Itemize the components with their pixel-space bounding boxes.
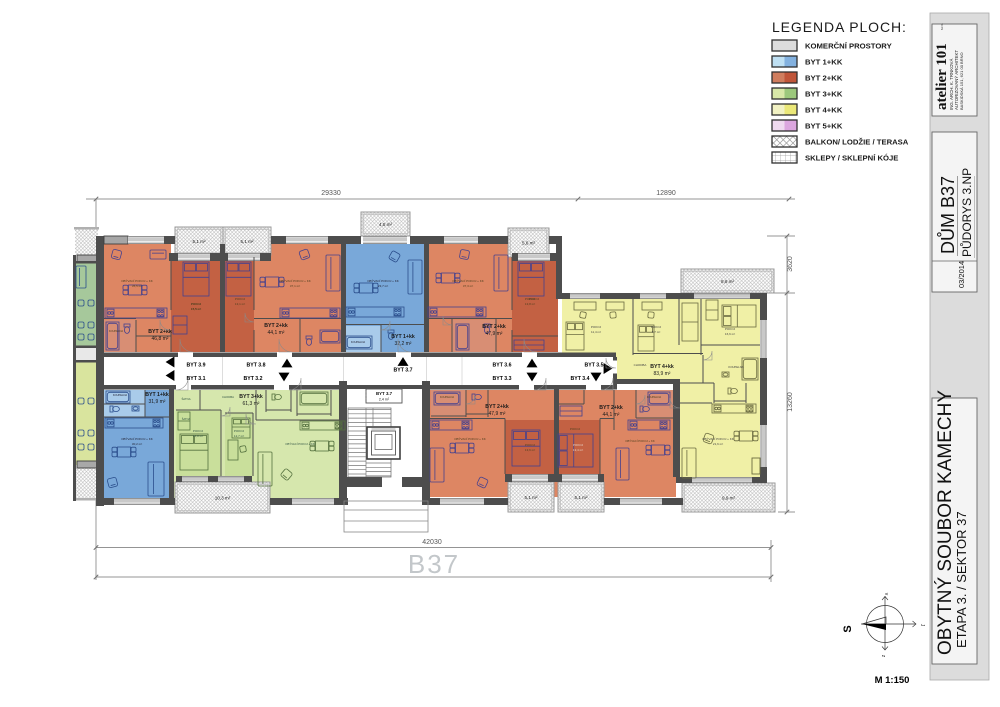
svg-text:POKOJ: POKOJ — [651, 325, 662, 329]
svg-text:16,6 m²: 16,6 m² — [725, 332, 735, 336]
svg-text:BYT 4+KK: BYT 4+KK — [805, 106, 843, 115]
svg-text:BYT 2+kk: BYT 2+kk — [599, 405, 623, 411]
svg-text:37,3 m²: 37,3 m² — [463, 284, 473, 288]
svg-text:POKOJ: POKOJ — [525, 443, 536, 447]
svg-text:13260: 13260 — [787, 392, 794, 412]
svg-text:5,1 m²: 5,1 m² — [192, 239, 205, 244]
svg-text:BYT 4+kk: BYT 4+kk — [650, 364, 674, 370]
svg-text:13,8 m²: 13,8 m² — [525, 302, 535, 306]
svg-text:KOMERČNÍ PROSTORY: KOMERČNÍ PROSTORY — [805, 42, 892, 51]
svg-text:OBÝVACÍ POKOJ + KK: OBÝVACÍ POKOJ + KK — [121, 437, 153, 441]
svg-text:BYT 1+KK: BYT 1+KK — [805, 58, 843, 67]
svg-text:OBÝVACÍ POKOJ + KK: OBÝVACÍ POKOJ + KK — [452, 279, 484, 283]
svg-text:BYT 1+kk: BYT 1+kk — [145, 392, 169, 398]
svg-text:BYT 2+kk: BYT 2+kk — [482, 324, 506, 330]
svg-text:BYT 3.2: BYT 3.2 — [243, 376, 262, 382]
svg-text:BYT 5+KK: BYT 5+KK — [805, 122, 843, 131]
svg-text:10,3 m²: 10,3 m² — [215, 496, 231, 501]
svg-text:PŮDORYS 3.NP: PŮDORYS 3.NP — [959, 168, 974, 257]
svg-text:29330: 29330 — [321, 190, 341, 197]
svg-text:46,8 m²: 46,8 m² — [152, 336, 169, 342]
svg-text:5,1 m²: 5,1 m² — [574, 495, 587, 500]
svg-text:POKOJ: POKOJ — [191, 302, 202, 306]
svg-text:s.r.o.: s.r.o. — [940, 23, 944, 30]
svg-text:KOUPELNA: KOUPELNA — [113, 393, 127, 397]
svg-text:KOUPELNA: KOUPELNA — [647, 395, 661, 399]
svg-text:BYT 1+kk: BYT 1+kk — [391, 334, 415, 340]
svg-text:8,6 m²: 8,6 m² — [721, 279, 734, 284]
svg-text:44,1 m²: 44,1 m² — [603, 412, 620, 418]
svg-text:23,7 m²: 23,7 m² — [378, 284, 388, 288]
svg-text:CHODBA: CHODBA — [222, 395, 234, 399]
svg-text:BASKIDSKÁ 151, 621 00 BRNO: BASKIDSKÁ 151, 621 00 BRNO — [959, 52, 964, 110]
svg-text:POKOJ: POKOJ — [725, 327, 736, 331]
svg-text:KOUPELNA: KOUPELNA — [728, 365, 743, 369]
svg-text:POKOJ: POKOJ — [234, 429, 245, 433]
svg-text:44,1 m²: 44,1 m² — [268, 330, 285, 336]
svg-text:SKLEPY / SKLEPNÍ KÓJE: SKLEPY / SKLEPNÍ KÓJE — [805, 154, 898, 163]
svg-text:OBÝVACÍ POKOJ + KK: OBÝVACÍ POKOJ + KK — [121, 279, 153, 283]
svg-text:4,5 m²: 4,5 m² — [379, 222, 392, 227]
svg-text:15,8 m²: 15,8 m² — [193, 434, 203, 438]
svg-text:5,6 m²: 5,6 m² — [522, 241, 535, 246]
svg-text:OBYTNÝ SOUBOR KAMECHY: OBYTNÝ SOUBOR KAMECHY — [935, 390, 956, 655]
svg-text:47,9 m²: 47,9 m² — [486, 331, 503, 337]
svg-text:BYT 3.5: BYT 3.5 — [584, 363, 603, 369]
svg-text:BYT 3+KK: BYT 3+KK — [805, 90, 843, 99]
svg-text:ŠATNA: ŠATNA — [181, 396, 190, 401]
svg-text:61,3 m²: 61,3 m² — [243, 401, 260, 407]
svg-text:OBÝVACÍ POKOJ + KK: OBÝVACÍ POKOJ + KK — [625, 439, 655, 443]
svg-text:BYT 2+KK: BYT 2+KK — [805, 74, 843, 83]
svg-text:12890: 12890 — [656, 190, 676, 197]
svg-text:30,2 m²: 30,2 m² — [132, 442, 142, 446]
svg-text:BYT 3.1: BYT 3.1 — [186, 376, 205, 382]
svg-text:13,6 m²: 13,6 m² — [525, 448, 535, 452]
svg-text:BYT 2+kk: BYT 2+kk — [485, 404, 509, 410]
svg-text:BYT 3.6: BYT 3.6 — [492, 363, 511, 369]
svg-text:5,1 m²: 5,1 m² — [524, 495, 537, 500]
svg-text:83,9 m²: 83,9 m² — [654, 371, 671, 377]
svg-text:03/2014: 03/2014 — [957, 261, 966, 288]
svg-text:35,5 m²: 35,5 m² — [132, 284, 142, 288]
svg-text:42030: 42030 — [422, 539, 442, 546]
svg-text:BYT 3.4: BYT 3.4 — [570, 376, 589, 382]
svg-text:CHODBA: CHODBA — [634, 363, 647, 367]
svg-text:KOUPELNA: KOUPELNA — [440, 395, 454, 399]
svg-text:31,9 m²: 31,9 m² — [149, 399, 166, 405]
svg-text:8,7 m²: 8,7 m² — [652, 330, 661, 334]
svg-text:32,2 m²: 32,2 m² — [395, 341, 412, 347]
svg-text:5,1 m²: 5,1 m² — [240, 239, 253, 244]
svg-text:BYT 3.3: BYT 3.3 — [492, 376, 511, 382]
svg-text:KOUPELNA: KOUPELNA — [351, 340, 365, 344]
svg-text:OBÝVACÍ POKOJ + KK: OBÝVACÍ POKOJ + KK — [454, 437, 486, 441]
svg-text:S: S — [842, 625, 854, 632]
svg-text:LEGENDA PLOCH:: LEGENDA PLOCH: — [772, 19, 907, 35]
svg-text:37,1 m²: 37,1 m² — [290, 284, 300, 288]
svg-text:OBÝVACÍ POKOJ + KK: OBÝVACÍ POKOJ + KK — [367, 279, 399, 283]
svg-text:BALKON/ LODŽIE / TERASA: BALKON/ LODŽIE / TERASA — [805, 138, 909, 147]
svg-text:BYT 3.9: BYT 3.9 — [186, 363, 205, 369]
svg-text:POKOJ: POKOJ — [235, 297, 246, 301]
svg-text:DŮM B37: DŮM B37 — [937, 176, 958, 254]
svg-text:atelier 101: atelier 101 — [934, 43, 950, 110]
svg-text:ETAPA 3. / SEKTOR 37: ETAPA 3. / SEKTOR 37 — [954, 511, 969, 648]
svg-text:9,9 m²: 9,9 m² — [722, 496, 735, 501]
svg-text:OBÝVACÍ POKOJ + KK: OBÝVACÍ POKOJ + KK — [279, 279, 311, 283]
svg-text:13,1 m²: 13,1 m² — [235, 302, 245, 306]
svg-text:POKOJ: POKOJ — [525, 297, 536, 301]
svg-text:POKOJ: POKOJ — [570, 427, 581, 431]
svg-text:12,7 m²: 12,7 m² — [234, 434, 244, 438]
svg-text:OBÝVACÍ POKOJ + KK: OBÝVACÍ POKOJ + KK — [285, 442, 315, 446]
svg-text:POKOJ: POKOJ — [591, 325, 602, 329]
svg-text:POKOJ: POKOJ — [193, 429, 204, 433]
svg-text:47,9 m²: 47,9 m² — [489, 411, 506, 417]
svg-text:BYT 3.8: BYT 3.8 — [246, 363, 265, 369]
svg-text:3620: 3620 — [787, 256, 794, 272]
svg-text:21,6 m²: 21,6 m² — [713, 442, 723, 446]
svg-text:BYT 3.7: BYT 3.7 — [376, 391, 393, 396]
svg-text:15,5 m²: 15,5 m² — [191, 307, 201, 311]
svg-text:13,4 m²: 13,4 m² — [573, 448, 583, 452]
svg-text:KOUPELNA: KOUPELNA — [109, 329, 123, 333]
svg-text:2,4 m²: 2,4 m² — [379, 398, 390, 402]
svg-text:OBÝVACÍ POKOJ + KK: OBÝVACÍ POKOJ + KK — [702, 437, 734, 441]
svg-text:M 1:150: M 1:150 — [875, 675, 910, 686]
svg-text:BYT 2+kk: BYT 2+kk — [264, 323, 288, 329]
svg-text:B37: B37 — [408, 549, 460, 579]
svg-text:11,4 m²: 11,4 m² — [591, 330, 601, 334]
svg-text:POKOJ: POKOJ — [573, 443, 584, 447]
svg-text:BYT 3.7: BYT 3.7 — [393, 368, 412, 374]
svg-text:BYT 3+kk: BYT 3+kk — [239, 394, 263, 400]
